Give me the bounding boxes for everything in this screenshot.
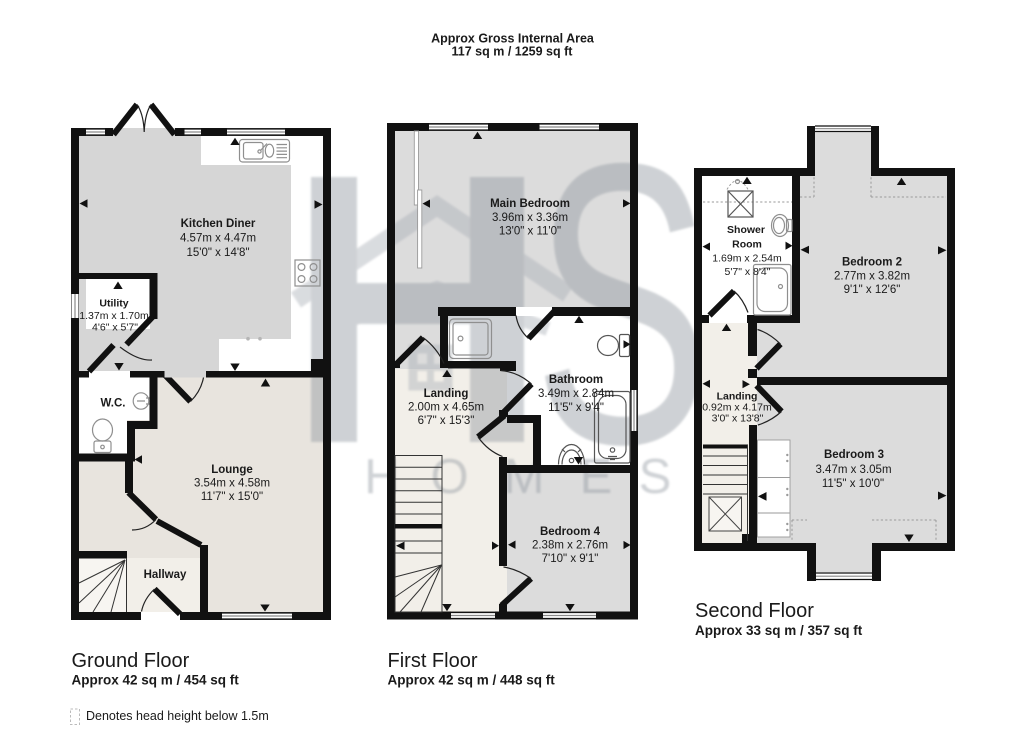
svg-text:Bedroom 2: Bedroom 2 <box>842 257 902 269</box>
svg-text:2.00m x 4.65m: 2.00m x 4.65m <box>408 402 484 414</box>
svg-text:S: S <box>639 450 672 504</box>
svg-text:Bathroom: Bathroom <box>549 374 603 386</box>
svg-text:Approx 42 sq m / 454 sq ft: Approx 42 sq m / 454 sq ft <box>72 673 240 688</box>
svg-text:Landing: Landing <box>424 388 469 400</box>
svg-text:5'7" x 8'4": 5'7" x 8'4" <box>725 266 771 278</box>
svg-text:7'10" x 9'1": 7'10" x 9'1" <box>542 553 599 565</box>
svg-text:3.96m x 3.36m: 3.96m x 3.36m <box>492 212 568 224</box>
svg-text:Room: Room <box>732 239 762 251</box>
svg-text:1.37m x 1.70m: 1.37m x 1.70m <box>79 310 149 322</box>
svg-text:Bedroom 4: Bedroom 4 <box>540 526 601 538</box>
svg-text:Utility: Utility <box>99 298 128 310</box>
svg-text:11'5" x 9'4": 11'5" x 9'4" <box>548 402 604 414</box>
svg-text:Bedroom 3: Bedroom 3 <box>824 449 884 461</box>
svg-text:3.47m x 3.05m: 3.47m x 3.05m <box>815 464 891 476</box>
svg-text:Approx 42 sq m / 448 sq ft: Approx 42 sq m / 448 sq ft <box>388 673 556 688</box>
svg-text:1.69m x 2.54m: 1.69m x 2.54m <box>712 253 782 265</box>
svg-text:6'7" x 15'3": 6'7" x 15'3" <box>418 415 475 427</box>
svg-text:3'0" x 13'8": 3'0" x 13'8" <box>712 413 764 425</box>
svg-text:117 sq m / 1259 sq ft: 117 sq m / 1259 sq ft <box>452 45 574 59</box>
svg-text:Shower: Shower <box>727 224 765 236</box>
svg-text:Kitchen Diner: Kitchen Diner <box>181 218 256 230</box>
svg-text:Approx 33 sq m / 357 sq ft: Approx 33 sq m / 357 sq ft <box>695 623 863 638</box>
svg-text:11'5" x 10'0": 11'5" x 10'0" <box>822 478 884 490</box>
svg-text:3.54m x 4.58m: 3.54m x 4.58m <box>194 478 270 490</box>
svg-text:15'0" x 14'8": 15'0" x 14'8" <box>186 247 249 259</box>
svg-text:Second Floor: Second Floor <box>695 600 814 622</box>
svg-text:First Floor: First Floor <box>388 650 478 672</box>
svg-text:2.38m x 2.76m: 2.38m x 2.76m <box>532 540 608 552</box>
svg-text:Main Bedroom: Main Bedroom <box>490 198 570 210</box>
svg-text:Approx Gross Internal Area: Approx Gross Internal Area <box>431 32 595 46</box>
svg-text:Denotes head height below 1.5m: Denotes head height below 1.5m <box>86 709 269 723</box>
svg-text:3.49m x 2.84m: 3.49m x 2.84m <box>538 388 614 400</box>
svg-text:2.77m x 3.82m: 2.77m x 3.82m <box>834 271 910 283</box>
svg-text:13'0" x 11'0": 13'0" x 11'0" <box>499 226 561 238</box>
svg-text:4.57m x 4.47m: 4.57m x 4.47m <box>180 233 256 245</box>
svg-text:Ground Floor: Ground Floor <box>72 650 190 672</box>
svg-text:11'7" x 15'0": 11'7" x 15'0" <box>201 491 263 503</box>
svg-text:4'6" x 5'7": 4'6" x 5'7" <box>92 322 138 334</box>
svg-text:W.C.: W.C. <box>101 398 126 410</box>
svg-text:Lounge: Lounge <box>211 464 253 476</box>
svg-text:S: S <box>533 80 711 527</box>
svg-text:O: O <box>430 450 468 504</box>
svg-text:Hallway: Hallway <box>144 569 187 581</box>
svg-text:9'1" x 12'6": 9'1" x 12'6" <box>844 284 901 296</box>
